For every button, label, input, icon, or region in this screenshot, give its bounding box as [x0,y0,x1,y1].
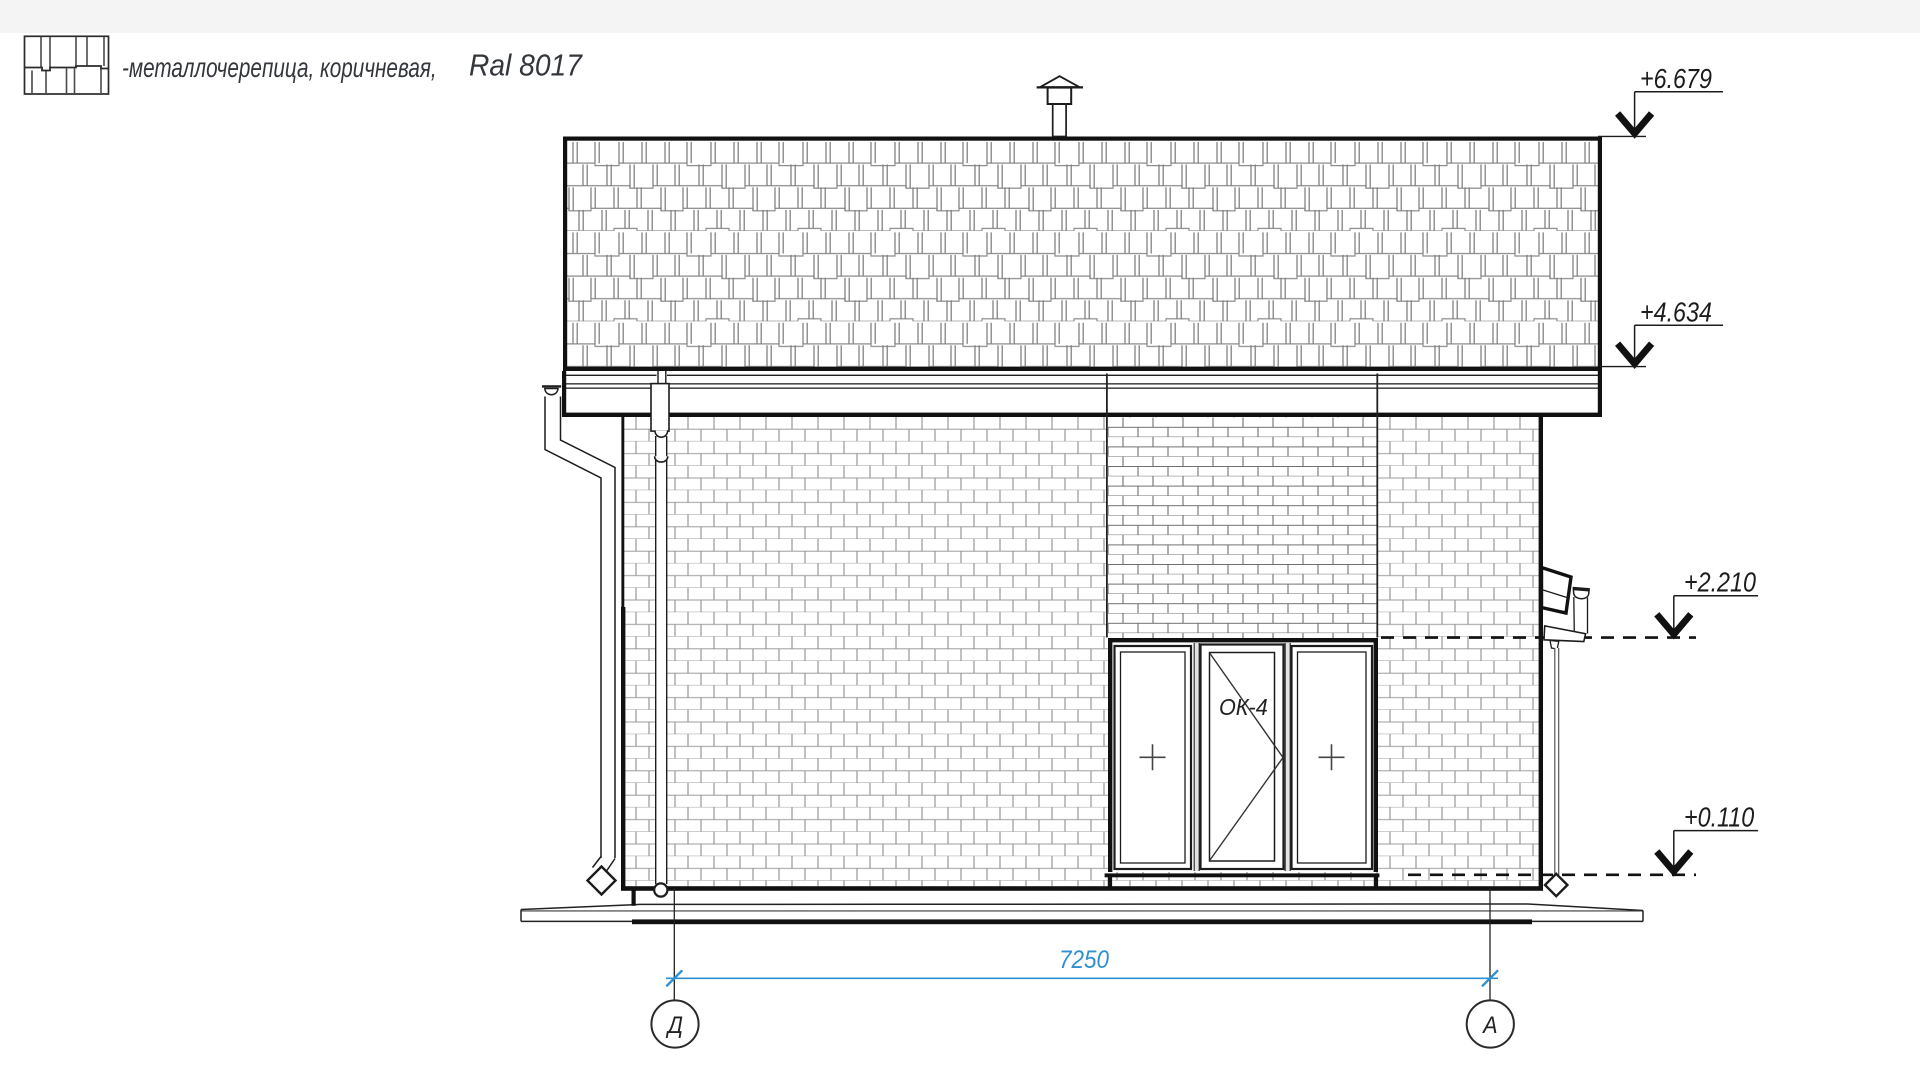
svg-text:+0.110: +0.110 [1684,803,1755,833]
svg-text:+2.210: +2.210 [1684,568,1757,598]
svg-text:+4.634: +4.634 [1640,298,1712,328]
svg-text:Д: Д [665,1011,683,1038]
svg-text:А: А [1481,1011,1497,1038]
svg-text:ОК-4: ОК-4 [1219,694,1268,720]
svg-text:7250: 7250 [1059,946,1110,974]
svg-text:Ral 8017: Ral 8017 [469,48,583,83]
svg-text:+6.679: +6.679 [1640,64,1712,94]
svg-text:-металлочерепица, коричневая,: -металлочерепица, коричневая, [122,53,437,84]
